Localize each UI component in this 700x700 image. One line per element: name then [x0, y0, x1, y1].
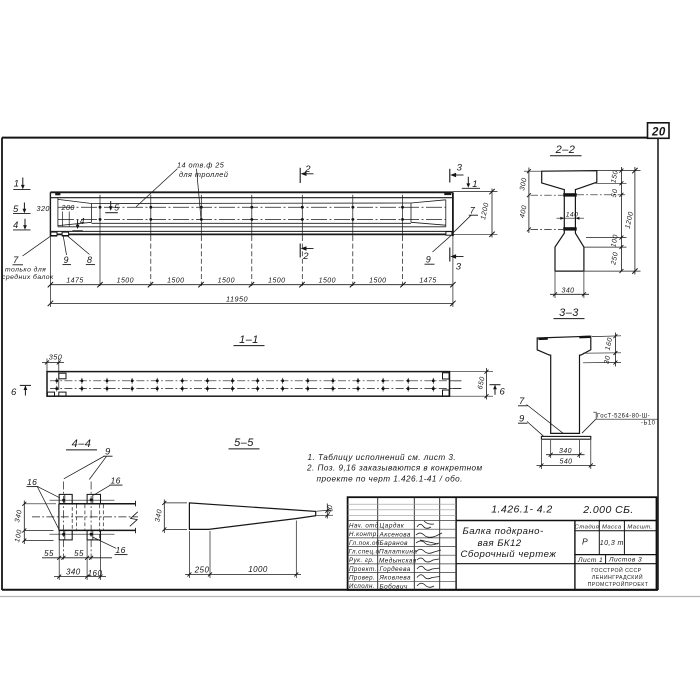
svg-text:16: 16: [111, 476, 121, 486]
svg-text:1475: 1475: [419, 278, 436, 285]
svg-text:5: 5: [114, 203, 119, 213]
svg-text:2: 2: [302, 251, 309, 262]
svg-text:Масшт.: Масшт.: [627, 525, 652, 531]
svg-text:350: 350: [49, 353, 63, 362]
svg-text:1000: 1000: [248, 565, 268, 574]
svg-text:6: 6: [11, 387, 17, 398]
svg-text:1500: 1500: [319, 278, 336, 285]
svg-text:320: 320: [37, 204, 50, 213]
svg-text:Р: Р: [582, 537, 588, 547]
svg-text:2.000 СБ.: 2.000 СБ.: [582, 504, 634, 516]
svg-text:1. Таблицу исполнений см. лис: 1. Таблицу исполнений см. лист 3.: [308, 453, 457, 462]
svg-text:250: 250: [194, 566, 210, 575]
svg-text:9: 9: [64, 255, 69, 265]
svg-text:1500: 1500: [218, 278, 235, 285]
svg-text:Исполн.: Исполн.: [349, 583, 375, 590]
svg-text:вая БК12: вая БК12: [478, 538, 522, 549]
svg-text:2: 2: [304, 164, 311, 175]
svg-text:Листов 3: Листов 3: [608, 557, 642, 564]
svg-text:14 отв.ф 25: 14 отв.ф 25: [177, 160, 225, 169]
svg-text:Бобович: Бобович: [380, 582, 408, 590]
svg-text:Цардак: Цардак: [380, 522, 405, 530]
svg-text:2. Поз. 9,16 заказываются в ко: 2. Поз. 9,16 заказываются в конкретном: [306, 464, 483, 473]
svg-text:ГосТ-5264-80-Ш-: ГосТ-5264-80-Ш-: [597, 414, 650, 420]
svg-text:Баранов: Баранов: [380, 540, 409, 547]
svg-text:10,3 т: 10,3 т: [600, 540, 624, 547]
svg-text:ЛЕНИНГРАДСКИЙ: ЛЕНИНГРАДСКИЙ: [592, 573, 643, 581]
svg-text:6: 6: [500, 387, 506, 398]
svg-text:Масса: Масса: [602, 525, 622, 531]
svg-text:1–1: 1–1: [239, 334, 259, 346]
svg-text:только для: только для: [5, 266, 46, 274]
svg-text:Провер.: Провер.: [349, 575, 375, 582]
svg-text:1500: 1500: [117, 278, 134, 285]
svg-text:9: 9: [426, 255, 431, 265]
svg-text:средних балок: средних балок: [2, 273, 54, 281]
svg-text:5–5: 5–5: [234, 437, 254, 449]
svg-text:для троллей: для троллей: [179, 170, 228, 179]
svg-text:16: 16: [116, 545, 126, 555]
svg-text:1475: 1475: [66, 278, 83, 285]
svg-text:4–4: 4–4: [72, 438, 92, 450]
svg-text:Палаткина: Палаткина: [379, 549, 417, 556]
svg-text:7: 7: [470, 206, 476, 216]
svg-text:2–2: 2–2: [555, 144, 576, 156]
svg-text:Гл.пок.об: Гл.пок.об: [349, 540, 380, 547]
svg-text:4: 4: [80, 216, 85, 226]
svg-text:Рук. гр.: Рук. гр.: [349, 557, 374, 564]
svg-text:Стадия: Стадия: [575, 525, 600, 531]
svg-text:Аксенова: Аксенова: [379, 531, 411, 538]
svg-text:Н.контр.: Н.контр.: [349, 531, 379, 538]
svg-text:Яковлева: Яковлева: [379, 575, 412, 582]
svg-text:ГОССТРОЙ СССР: ГОССТРОЙ СССР: [591, 566, 641, 574]
svg-text:340: 340: [561, 288, 574, 295]
svg-text:55: 55: [44, 549, 54, 558]
svg-text:340: 340: [66, 568, 81, 577]
svg-text:55: 55: [74, 549, 84, 558]
svg-text:140: 140: [566, 211, 579, 218]
svg-text:проекте по черт 1.426.1-41: проекте по черт 1.426.1-41 / обо.: [317, 474, 463, 483]
svg-text:16: 16: [27, 477, 37, 487]
svg-text:1.426.1- 4.2: 1.426.1- 4.2: [491, 503, 552, 515]
svg-text:20: 20: [651, 127, 666, 139]
svg-text:3–3: 3–3: [559, 307, 579, 319]
svg-text:Лист 1: Лист 1: [577, 557, 603, 564]
svg-text:160: 160: [88, 569, 103, 578]
svg-text:Проект.: Проект.: [349, 566, 377, 573]
svg-text:Балка подкрано-: Балка подкрано-: [463, 526, 544, 537]
svg-text:Медынская: Медынская: [379, 556, 417, 564]
svg-text:Гл.спец.о: Гл.спец.о: [349, 548, 380, 555]
svg-text:540: 540: [559, 459, 572, 466]
svg-text:8: 8: [87, 255, 92, 265]
svg-text:3: 3: [456, 262, 462, 273]
svg-text:Нач. отд: Нач. отд: [349, 522, 379, 529]
svg-text:1500: 1500: [268, 278, 285, 285]
svg-text:Гордеева: Гордеева: [380, 565, 411, 573]
svg-text:1500: 1500: [167, 278, 184, 285]
svg-text:Сборочный чертеж: Сборочный чертеж: [461, 549, 557, 560]
svg-text:3: 3: [457, 163, 463, 174]
svg-text:1: 1: [14, 179, 20, 190]
svg-text:1500: 1500: [369, 278, 386, 285]
svg-text:-Ь10: -Ь10: [641, 420, 656, 426]
svg-text:ПРОМСТРОЙПРОЕКТ: ПРОМСТРОЙПРОЕКТ: [588, 580, 649, 588]
svg-text:340: 340: [559, 448, 572, 455]
svg-text:200: 200: [61, 203, 75, 212]
svg-text:11950: 11950: [226, 295, 248, 304]
